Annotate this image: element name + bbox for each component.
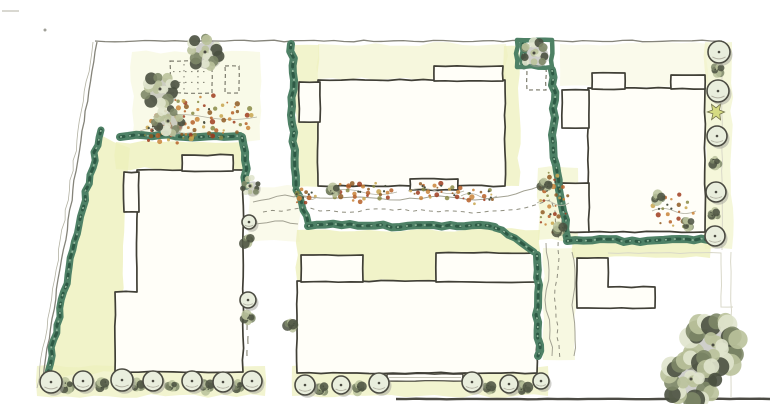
flower-dark-speck: [490, 196, 492, 198]
shrub-speck: [717, 69, 718, 70]
building-east: [562, 90, 589, 129]
flower-dark-speck: [296, 193, 298, 195]
tree-center-dot: [340, 384, 343, 387]
flower-dark-speck: [302, 196, 304, 198]
flower-dot: [176, 105, 181, 110]
tree-scribble-blob: [253, 189, 259, 195]
flower-dark-speck: [488, 199, 490, 201]
flower-dot: [555, 174, 559, 178]
shrub-speck: [521, 389, 522, 390]
flower-dot: [480, 191, 483, 194]
flower-dot: [236, 110, 239, 113]
tree-center-dot: [712, 344, 715, 347]
tree-center-dot: [247, 299, 250, 302]
flower-dot: [357, 182, 362, 187]
flower-dot: [233, 121, 236, 124]
tree-center-dot: [718, 51, 721, 54]
flower-dot: [196, 108, 199, 111]
tree-scribble-blob: [521, 53, 529, 61]
shrub-speck: [523, 390, 524, 391]
flower-dot: [245, 113, 250, 118]
flower-dot: [473, 202, 476, 205]
tree-scribble-blob: [708, 373, 722, 387]
building-west: [123, 172, 139, 212]
flower-dark-speck: [357, 191, 359, 193]
tree-center-dot: [159, 88, 162, 91]
flower-dot: [339, 183, 342, 186]
flower-dot: [214, 128, 218, 132]
building-north: [434, 66, 503, 81]
flower-dot: [304, 201, 308, 205]
flower-dot: [202, 125, 205, 128]
tree-scribble-blob: [531, 58, 538, 65]
shrub-blob: [320, 382, 329, 391]
shrub-speck: [360, 388, 361, 389]
flower-dark-speck: [384, 185, 386, 187]
flower-dot: [362, 197, 366, 201]
tree-center-dot: [222, 381, 225, 384]
flower-dot: [540, 221, 542, 223]
flower-dot: [429, 196, 432, 199]
flower-dot: [434, 192, 439, 197]
flower-dark-speck: [203, 121, 205, 123]
tree-scribble-blob: [539, 58, 546, 65]
shrub-speck: [331, 192, 332, 193]
flower-dot: [191, 112, 194, 115]
flower-dot: [490, 193, 492, 195]
flower-dot: [539, 199, 542, 202]
shrub-blob: [558, 222, 567, 231]
flower-dot: [314, 195, 317, 198]
flower-dot: [542, 199, 545, 202]
flower-dot: [546, 194, 549, 197]
flower-dark-speck: [208, 108, 210, 110]
flower-dot: [548, 215, 551, 218]
shrub-speck: [710, 212, 711, 213]
flower-dot: [666, 212, 670, 216]
flower-dot: [157, 139, 162, 144]
tree-center-dot: [248, 221, 251, 224]
tree-scribble-inner: [693, 372, 705, 384]
building-east: [588, 88, 706, 233]
tree-scribble-blob: [539, 43, 548, 52]
flower-dot: [304, 190, 308, 194]
shrub-speck: [64, 387, 65, 388]
tree-scribble-blob: [202, 35, 212, 45]
shrub-speck: [525, 385, 526, 386]
building-west: [182, 154, 233, 171]
grass-wash: [541, 248, 576, 360]
flower-dot: [184, 110, 186, 112]
tree-scribble-inner: [677, 377, 689, 389]
shrub-speck: [686, 224, 687, 225]
shrub-speck: [323, 386, 324, 387]
flower-dot: [483, 199, 485, 201]
shrub-speck: [322, 391, 323, 392]
flower-dark-speck: [554, 181, 556, 183]
flower-dot: [144, 134, 146, 136]
tree-scribble-blob: [175, 114, 183, 122]
flower-dot: [367, 188, 370, 191]
shrub-speck: [65, 382, 66, 383]
tree-center-dot: [716, 135, 719, 138]
flower-dot: [199, 96, 202, 99]
flower-dark-speck: [488, 190, 490, 192]
flower-dot: [450, 185, 454, 189]
flower-dot: [207, 110, 212, 115]
flower-dot: [433, 184, 437, 188]
flower-dot: [559, 188, 561, 190]
flower-dot: [414, 193, 416, 195]
flower-dot: [307, 195, 312, 200]
building-south: [297, 280, 538, 373]
flower-dark-speck: [666, 204, 668, 206]
flower-dot: [386, 191, 390, 195]
flower-dot: [565, 213, 567, 215]
flower-dot: [419, 182, 422, 185]
flower-dot: [350, 181, 355, 186]
flower-dot: [656, 212, 661, 217]
flower-dot: [456, 190, 460, 194]
flower-dot: [556, 214, 560, 218]
shrub-speck: [293, 325, 294, 326]
shrub-speck: [487, 385, 488, 386]
flower-dot: [440, 191, 442, 193]
flower-dot: [544, 223, 546, 225]
flower-dot: [247, 106, 252, 111]
shrub-blob: [171, 382, 177, 388]
tree-center-dot: [540, 380, 543, 383]
shrub-speck: [137, 384, 138, 385]
flower-dot: [297, 196, 302, 201]
shrub-speck: [712, 159, 713, 160]
flower-dot: [235, 101, 240, 106]
flower-dot: [436, 187, 438, 189]
flower-dot: [389, 188, 393, 192]
flower-dot: [221, 118, 226, 123]
tree-center-dot: [508, 383, 511, 386]
shrub-blob: [714, 158, 720, 164]
flower-dot: [189, 136, 194, 141]
flower-dot: [561, 185, 565, 189]
tree-scribble-inner: [715, 339, 728, 352]
flower-dot: [372, 185, 375, 188]
flower-dot: [366, 194, 369, 197]
flower-dot: [353, 195, 357, 199]
flower-dot: [193, 128, 197, 132]
shrub-speck: [171, 388, 172, 389]
flower-dot: [419, 196, 423, 200]
shrub-speck: [172, 385, 173, 386]
shrub-speck: [319, 390, 320, 391]
flower-dot: [296, 201, 298, 203]
shrub-speck: [357, 386, 358, 387]
flower-dot: [547, 204, 551, 208]
flower-dot: [245, 122, 248, 125]
flower-dot: [472, 189, 475, 192]
flower-dot: [445, 196, 449, 200]
flower-dot: [661, 207, 664, 210]
shrub-speck: [542, 186, 543, 187]
shrub-blob: [100, 378, 109, 387]
site-plan: Hand-drawn landscape site plan sketch wi…: [0, 0, 770, 404]
scan-speck: [44, 29, 47, 32]
flower-dot: [416, 191, 420, 195]
flower-dark-speck: [152, 130, 154, 132]
building-east: [592, 73, 625, 90]
tree-scribble-blob: [522, 43, 530, 51]
tree-center-dot: [191, 380, 194, 383]
flower-dot: [692, 212, 695, 215]
flower-dot: [185, 133, 188, 136]
shrub-speck: [240, 383, 241, 384]
flower-dark-speck: [453, 194, 455, 196]
flower-dot: [462, 197, 464, 199]
tree-scribble-blob: [201, 59, 210, 68]
tree-center-dot: [690, 378, 693, 381]
tree-center-dot: [167, 120, 170, 123]
tree-center-dot: [204, 51, 207, 54]
flower-dot: [676, 216, 680, 220]
shrub-blob: [67, 381, 73, 387]
flower-dot: [187, 126, 190, 129]
flower-dot: [197, 101, 199, 103]
shrub-speck: [330, 190, 331, 191]
flower-dot: [346, 189, 350, 193]
tree-center-dot: [304, 384, 307, 387]
shrub-speck: [247, 318, 248, 319]
tree-scribble-blob: [248, 175, 254, 181]
flower-dot: [352, 199, 355, 202]
flower-dot: [235, 130, 238, 133]
flower-dot: [226, 102, 228, 104]
tree-scribble-blob: [170, 80, 179, 89]
flower-dot: [190, 120, 195, 125]
flower-dot: [239, 123, 242, 126]
flower-dot: [547, 175, 552, 180]
shrub-speck: [249, 314, 250, 315]
site-plan-drawing: [0, 0, 770, 404]
flower-dot: [553, 212, 557, 216]
building-south: [436, 252, 537, 282]
building-north: [317, 79, 505, 186]
flower-dot: [555, 205, 557, 207]
flower-dot: [548, 172, 550, 174]
flower-dot: [554, 193, 558, 197]
shrub-speck: [208, 386, 209, 387]
flower-dot: [409, 189, 412, 192]
flower-dot: [231, 111, 234, 114]
flower-dot: [184, 104, 189, 109]
shrub-speck: [558, 227, 559, 228]
flower-dark-speck: [308, 193, 310, 195]
building-east: [671, 75, 706, 89]
flower-dot: [374, 182, 377, 185]
flower-dot: [228, 117, 232, 121]
tree-scribble-blob: [170, 108, 178, 116]
flower-dark-speck: [670, 208, 672, 210]
flower-dot: [466, 198, 471, 203]
tree-center-dot: [121, 379, 124, 382]
flower-dot: [379, 193, 382, 196]
flower-dot: [249, 113, 254, 118]
flower-dot: [211, 93, 216, 98]
tree-center-dot: [251, 380, 254, 383]
flower-dot: [223, 129, 225, 131]
flower-dot: [452, 192, 454, 194]
flower-dot: [558, 196, 561, 199]
flower-dark-speck: [359, 191, 361, 193]
tree-center-dot: [717, 90, 720, 93]
flower-dot: [182, 99, 186, 103]
flower-dot: [677, 203, 681, 207]
flower-dot: [678, 211, 680, 213]
flower-dot: [147, 139, 150, 142]
shrub-speck: [101, 387, 102, 388]
flower-dot: [176, 141, 179, 144]
tree-scribble-inner: [203, 53, 211, 61]
flower-dot: [149, 134, 153, 138]
flower-dot: [210, 134, 215, 139]
flower-dot: [210, 119, 215, 124]
flower-dot: [566, 194, 569, 197]
flower-dot: [180, 133, 183, 136]
tree-scribble-inner: [704, 332, 717, 345]
tree-center-dot: [50, 381, 53, 384]
shrub-speck: [544, 184, 545, 185]
shrub-speck: [656, 198, 657, 199]
flower-dot: [672, 225, 674, 227]
tree-center-dot: [714, 235, 717, 238]
flower-dark-speck: [658, 208, 660, 210]
shrub-speck: [208, 389, 209, 390]
flower-dot: [222, 132, 224, 134]
flower-dot: [458, 186, 462, 190]
flower-dot: [426, 190, 430, 194]
tree-center-dot: [82, 380, 85, 383]
shrub-speck: [289, 324, 290, 325]
flower-dark-speck: [421, 185, 423, 187]
tree-center-dot: [533, 52, 536, 55]
flower-dot: [221, 104, 224, 107]
shrub-speck: [105, 381, 106, 382]
shrub-speck: [249, 240, 250, 241]
flower-dot: [156, 133, 161, 138]
flower-dot: [553, 179, 555, 181]
building-north: [299, 82, 321, 122]
shrub-speck: [714, 69, 715, 70]
flower-dot: [195, 117, 200, 122]
flower-dot: [358, 199, 363, 204]
flower-dot: [182, 137, 184, 139]
flower-dot: [685, 206, 688, 209]
flower-dot: [300, 188, 304, 192]
flower-dot: [189, 133, 193, 137]
flower-dot: [234, 106, 236, 108]
flower-dot: [677, 192, 681, 196]
shrub-blob: [333, 185, 340, 192]
tree-scribble-blob: [189, 35, 200, 46]
flower-dot: [219, 114, 223, 118]
flower-dark-speck: [383, 190, 385, 192]
tree-center-dot: [152, 380, 155, 383]
flower-dot: [562, 198, 565, 201]
shrub-blob: [246, 234, 255, 243]
flower-dot: [213, 106, 217, 110]
shrub-speck: [237, 387, 238, 388]
shrub-speck: [66, 387, 67, 388]
flower-dot: [176, 99, 179, 102]
site-plan-canvas: [0, 0, 770, 404]
shrub-blob: [712, 209, 720, 217]
shrub-speck: [547, 186, 548, 187]
flower-dark-speck: [424, 186, 426, 188]
flower-dark-speck: [440, 185, 442, 187]
flower-dot: [210, 116, 213, 119]
shrub-speck: [293, 323, 294, 324]
flower-dark-speck: [469, 192, 471, 194]
flower-dot: [482, 194, 487, 199]
shrub-speck: [562, 227, 563, 228]
tree-center-dot: [249, 185, 252, 188]
flower-dot: [455, 195, 460, 200]
flower-dot: [377, 196, 381, 200]
shrub-speck: [169, 386, 170, 387]
flower-dot: [686, 201, 689, 204]
flower-dot: [541, 210, 545, 214]
tree-scribble-blob: [704, 358, 720, 374]
flower-dot: [219, 136, 223, 140]
tree-scribble-blob: [728, 330, 747, 349]
shrub-speck: [486, 387, 487, 388]
flower-dot: [386, 196, 390, 200]
tree-center-dot: [715, 191, 718, 194]
flower-dot: [659, 222, 661, 224]
flower-dot: [670, 198, 672, 200]
flower-dot: [669, 220, 672, 223]
flower-dot: [167, 138, 170, 141]
flower-dot: [203, 104, 206, 107]
shrub-speck: [490, 386, 491, 387]
shrub-speck: [712, 215, 713, 216]
flower-dark-speck: [148, 127, 150, 129]
building-south: [301, 255, 363, 282]
flower-dark-speck: [311, 191, 313, 193]
shrub-blob: [357, 381, 367, 391]
tree-center-dot: [378, 382, 381, 385]
shrub-blob: [688, 218, 695, 225]
flower-dot: [540, 216, 542, 218]
flower-dark-speck: [549, 213, 551, 215]
tree-scribble-blob: [255, 181, 260, 186]
shrub-speck: [137, 386, 138, 387]
flower-dot: [246, 126, 250, 130]
tree-center-dot: [471, 381, 474, 384]
